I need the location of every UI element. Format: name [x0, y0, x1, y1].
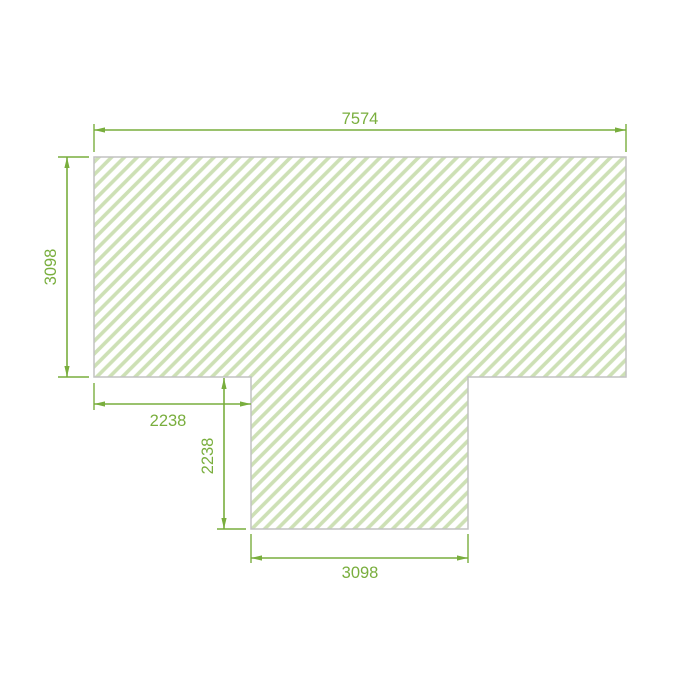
dim-left-height-label: 3098 — [42, 249, 60, 286]
t-shape-panel — [94, 157, 626, 529]
dim-stem-width-label: 3098 — [342, 564, 379, 582]
dim-overall-width-label: 7574 — [342, 110, 379, 128]
dimension-stem-offset: 2238 — [94, 383, 251, 430]
dimensioned-drawing: 7574 3098 2238 2238 3098 — [0, 0, 700, 700]
dimension-stem-width: 3098 — [251, 534, 468, 582]
dimension-overall-width: 7574 — [94, 110, 626, 152]
drawing-canvas: 7574 3098 2238 2238 3098 — [0, 0, 700, 700]
dim-stem-height-label: 2238 — [199, 438, 217, 475]
dimension-left-height: 3098 — [42, 157, 89, 377]
dim-stem-offset-label: 2238 — [150, 412, 187, 430]
dimension-stem-height: 2238 — [199, 378, 246, 529]
